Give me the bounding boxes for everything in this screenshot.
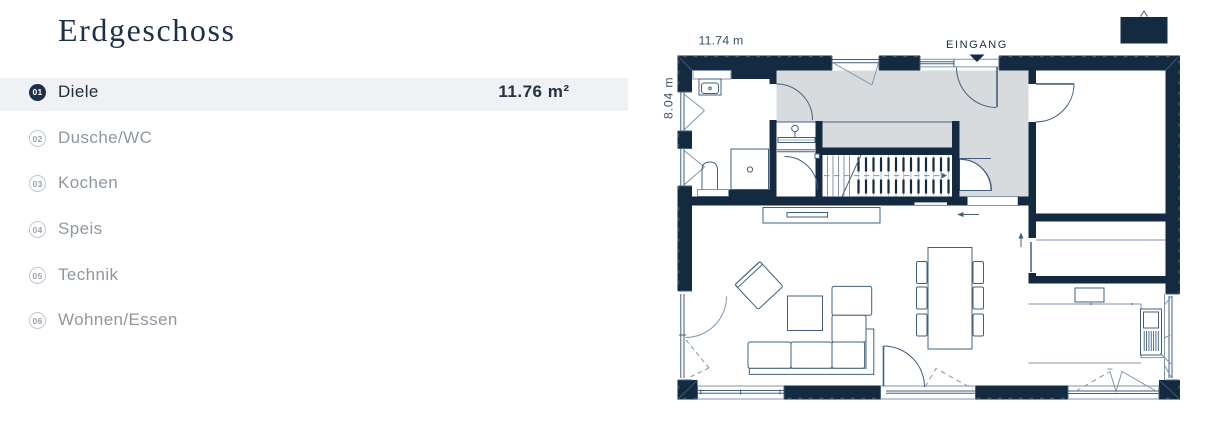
svg-text:11.74 m: 11.74 m (699, 34, 744, 48)
svg-text:8.04 m: 8.04 m (662, 77, 676, 119)
svg-text:EINGANG: EINGANG (946, 39, 1008, 51)
